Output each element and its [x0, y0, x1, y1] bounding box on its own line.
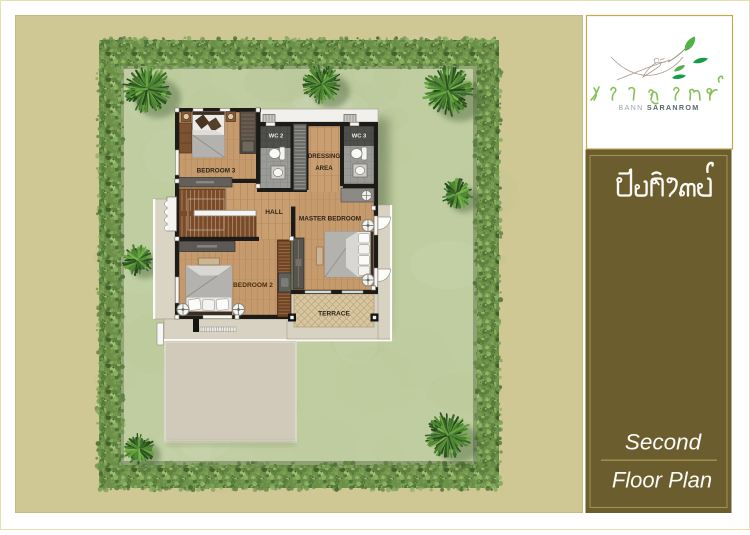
svg-text:TERRACE: TERRACE — [318, 311, 350, 318]
svg-text:DRESSING: DRESSING — [308, 153, 341, 160]
svg-text:Second: Second — [625, 430, 703, 455]
svg-text:WC 3: WC 3 — [352, 134, 367, 140]
svg-text:WC 2: WC 2 — [269, 134, 284, 140]
svg-text:HALL: HALL — [265, 209, 283, 216]
svg-text:AREA: AREA — [315, 165, 333, 172]
svg-text:MASTER BEDROOM: MASTER BEDROOM — [299, 216, 361, 223]
svg-text:BANN SARANROM: BANN SARANROM — [618, 103, 699, 112]
svg-text:BEDROOM 3: BEDROOM 3 — [197, 168, 236, 175]
svg-text:BEDROOM 2: BEDROOM 2 — [233, 282, 273, 289]
svg-text:Floor Plan: Floor Plan — [612, 468, 712, 493]
